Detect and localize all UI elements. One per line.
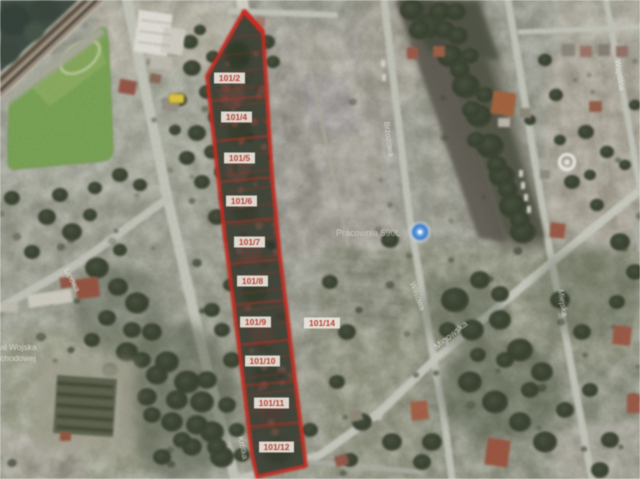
svg-text:101/7: 101/7 [239, 237, 261, 247]
svg-text:101/9: 101/9 [245, 317, 267, 327]
svg-text:101/10: 101/10 [250, 356, 276, 366]
svg-text:101/4: 101/4 [226, 112, 248, 122]
svg-text:chodowej: chodowej [0, 353, 36, 363]
svg-text:Pracownia 590L: Pracownia 590L [336, 228, 401, 238]
svg-text:101/5: 101/5 [229, 153, 251, 163]
svg-text:101/2: 101/2 [219, 73, 241, 83]
svg-text:101/6: 101/6 [231, 196, 253, 206]
svg-text:101/8: 101/8 [242, 276, 264, 286]
svg-text:101/12: 101/12 [264, 442, 290, 452]
svg-text:101/11: 101/11 [259, 398, 285, 408]
svg-text:ał Wojska: ał Wojska [0, 342, 37, 352]
svg-text:101/14: 101/14 [309, 318, 335, 328]
